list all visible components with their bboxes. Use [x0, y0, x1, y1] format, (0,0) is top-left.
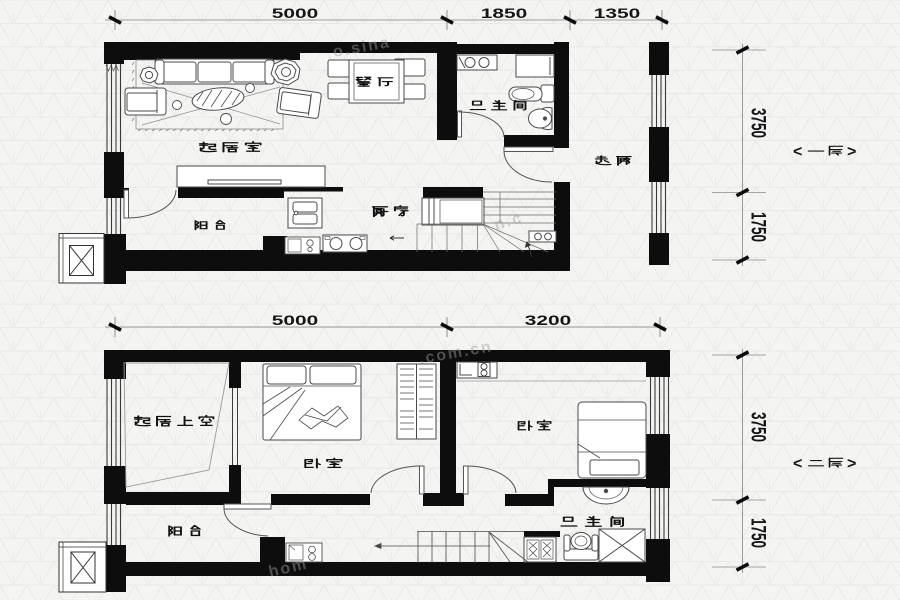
svg-text:<: < [793, 144, 802, 161]
svg-text:1850: 1850 [481, 6, 528, 21]
svg-text:3750: 3750 [747, 412, 771, 442]
svg-text:3750: 3750 [747, 108, 771, 138]
svg-text:>: > [847, 144, 856, 161]
svg-text:<: < [793, 456, 802, 473]
svg-text:5000: 5000 [272, 313, 319, 328]
svg-text:1750: 1750 [747, 212, 771, 242]
svg-text:3200: 3200 [525, 313, 572, 328]
svg-text:1350: 1350 [594, 6, 641, 21]
svg-text:1750: 1750 [747, 518, 771, 548]
svg-text:>: > [847, 456, 856, 473]
svg-text:5000: 5000 [272, 6, 319, 21]
